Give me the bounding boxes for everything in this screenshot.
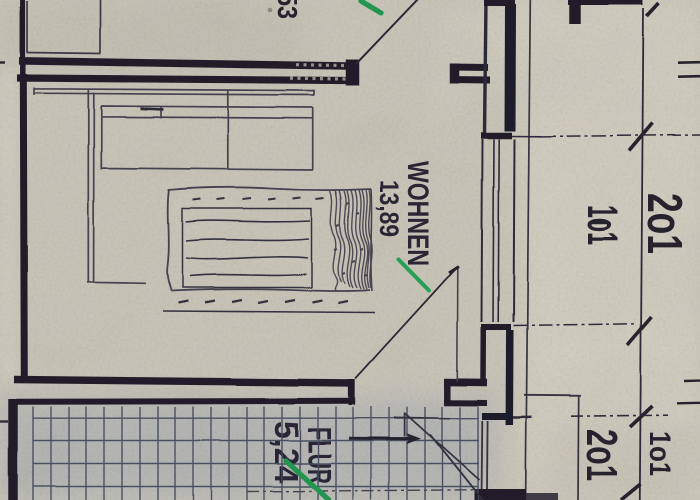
svg-text:2o1: 2o1 xyxy=(637,193,691,254)
svg-text:13,89: 13,89 xyxy=(374,180,404,237)
svg-text:WOHNEN: WOHNEN xyxy=(401,161,434,266)
svg-text:FLUR: FLUR xyxy=(301,427,338,484)
svg-text:2o1: 2o1 xyxy=(577,429,626,481)
svg-text:53: 53 xyxy=(272,0,303,19)
svg-text:1o1: 1o1 xyxy=(643,431,676,476)
svg-text:1o1: 1o1 xyxy=(578,205,626,245)
